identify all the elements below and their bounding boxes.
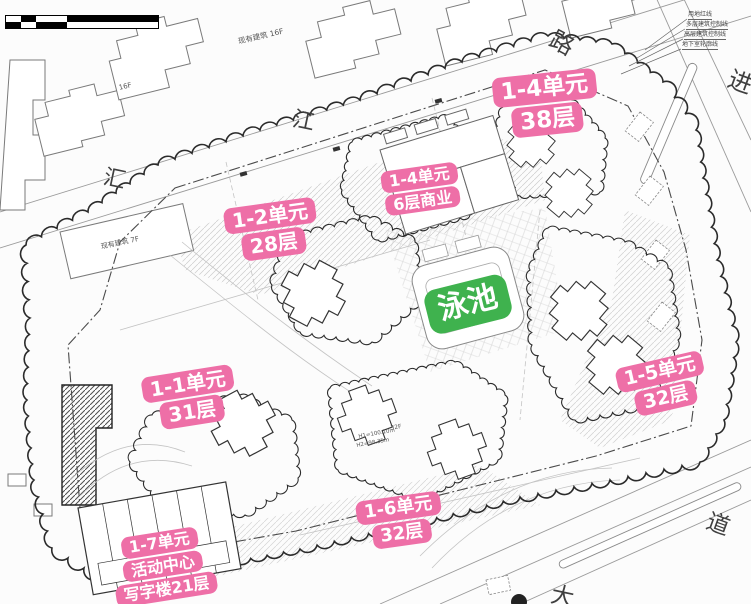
demolition-strip bbox=[62, 385, 112, 505]
scale-bar-graphic bbox=[5, 15, 159, 29]
site-plan-screenshot: 汇 江 路 进 道 大 现有建筑 16F 16F 现有建筑 7F 32F H1=… bbox=[0, 0, 751, 604]
legend-red-line: 用地红线 bbox=[688, 12, 712, 20]
legend-highrise-control-line: 高层建筑控制线 bbox=[684, 32, 726, 40]
scale-bar bbox=[2, 2, 177, 44]
legend-basement-outline: 地下室轮廓线 bbox=[682, 42, 718, 50]
unit-label-1-4-tower: 1-4单元 38层 bbox=[491, 68, 600, 141]
legend-multistorey-control-line: 多层建筑控制线 bbox=[686, 22, 728, 30]
legend-leaders bbox=[621, 19, 687, 74]
